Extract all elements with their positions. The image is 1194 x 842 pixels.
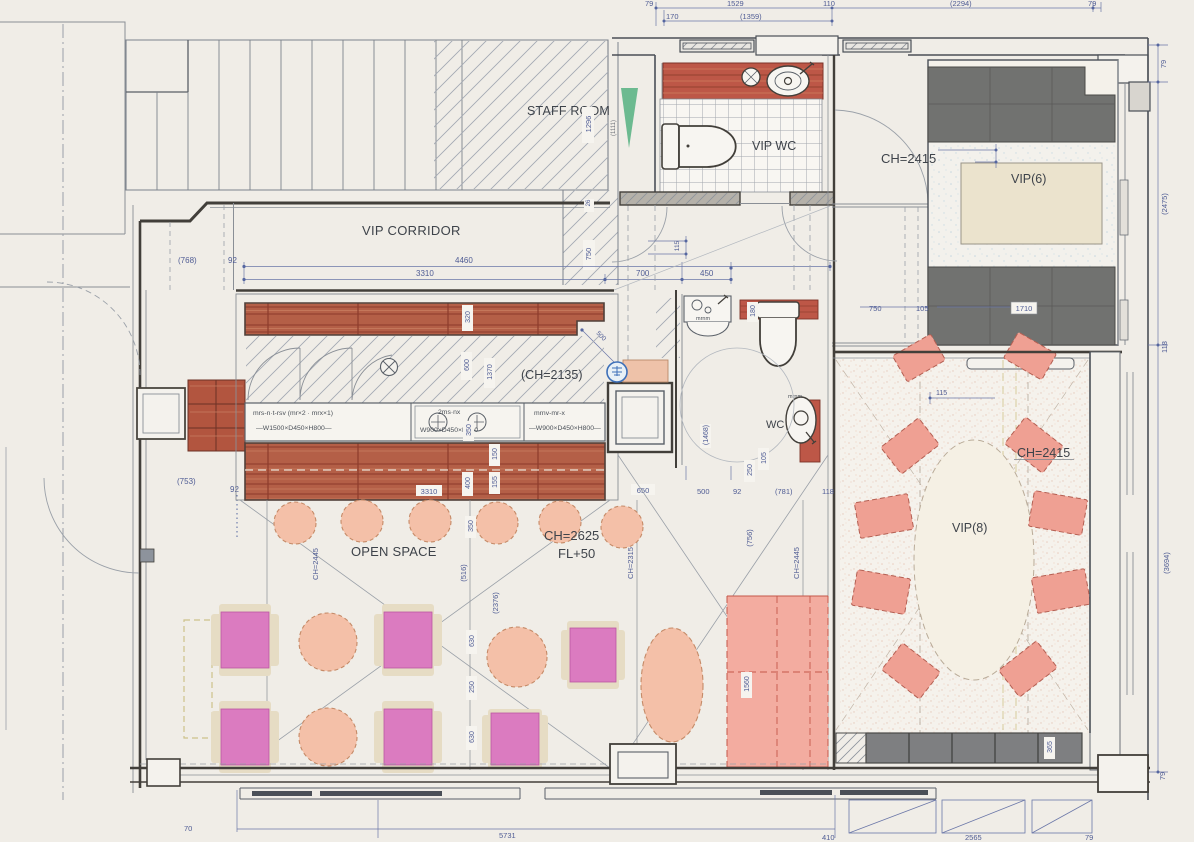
svg-text:155: 155	[492, 476, 499, 488]
svg-text:(1468): (1468)	[703, 425, 710, 445]
svg-text:115: 115	[674, 240, 681, 251]
svg-text:79: 79	[1085, 833, 1093, 842]
svg-text:750: 750	[584, 248, 593, 261]
svg-text:750: 750	[869, 304, 882, 313]
svg-text:FL+50: FL+50	[558, 546, 595, 561]
svg-text:(2475): (2475)	[1160, 193, 1169, 215]
svg-text:CH=2445: CH=2445	[311, 548, 320, 580]
svg-text:1560: 1560	[744, 676, 751, 692]
svg-text:630: 630	[469, 635, 476, 647]
svg-text:mrnm: mrnm	[788, 394, 802, 400]
svg-text:70: 70	[184, 824, 192, 833]
svg-text:mrnm: mrnm	[696, 316, 710, 322]
svg-text:320: 320	[465, 311, 472, 323]
svg-text:(781): (781)	[775, 487, 793, 496]
svg-text:500: 500	[697, 487, 710, 496]
svg-text:350: 350	[468, 520, 475, 532]
svg-text:115: 115	[936, 390, 947, 397]
svg-text:92: 92	[230, 485, 239, 494]
svg-text:(3694): (3694)	[1162, 552, 1171, 574]
svg-text:1370: 1370	[487, 364, 494, 380]
svg-text:VIP(8): VIP(8)	[952, 521, 987, 535]
svg-text:110: 110	[823, 0, 835, 8]
svg-text:650: 650	[637, 486, 650, 495]
svg-text:2ms·nx: 2ms·nx	[438, 409, 461, 416]
svg-text:118: 118	[1160, 341, 1169, 353]
svg-text:VIP CORRIDOR: VIP CORRIDOR	[362, 223, 461, 238]
svg-text:(2376): (2376)	[491, 592, 500, 614]
svg-text:630: 630	[469, 731, 476, 743]
svg-text:(1359): (1359)	[740, 12, 762, 21]
svg-text:400: 400	[465, 477, 472, 489]
svg-text:1296: 1296	[584, 116, 593, 133]
svg-text:(768): (768)	[178, 256, 197, 265]
svg-text:1529: 1529	[727, 0, 744, 8]
svg-text:WC: WC	[766, 419, 784, 431]
svg-text:105: 105	[916, 304, 929, 313]
svg-text:OPEN SPACE: OPEN SPACE	[351, 544, 437, 559]
svg-text:105: 105	[761, 452, 768, 464]
svg-text:79: 79	[1158, 772, 1167, 780]
svg-text:—W900×D450×H800—: —W900×D450×H800—	[529, 425, 601, 432]
svg-text:26: 26	[586, 199, 592, 206]
svg-text:170: 170	[666, 12, 679, 21]
svg-text:92: 92	[228, 256, 237, 265]
svg-text:(CH=2135): (CH=2135)	[521, 368, 583, 382]
svg-text:STAFF ROOM: STAFF ROOM	[527, 104, 610, 118]
svg-text:mrs-n·t-rsv (mr×2 · mrx×1): mrs-n·t-rsv (mr×2 · mrx×1)	[253, 410, 333, 417]
svg-text:2565: 2565	[965, 833, 982, 842]
svg-text:600: 600	[464, 359, 471, 371]
svg-text:450: 450	[700, 269, 714, 278]
svg-text:410: 410	[822, 833, 835, 842]
svg-text:(753): (753)	[177, 477, 196, 486]
svg-text:(756): (756)	[745, 529, 754, 547]
svg-text:3310: 3310	[416, 269, 434, 278]
svg-text:1710: 1710	[1016, 304, 1033, 313]
svg-text:CH=2415: CH=2415	[881, 151, 936, 166]
svg-text:VIP(6): VIP(6)	[1011, 172, 1046, 186]
svg-text:CH=2415: CH=2415	[1017, 446, 1070, 460]
svg-text:118: 118	[822, 487, 834, 496]
svg-text:3310: 3310	[421, 487, 438, 496]
svg-text:CH=2315: CH=2315	[626, 547, 635, 579]
svg-text:(1111): (1111)	[611, 120, 617, 136]
svg-text:92: 92	[733, 487, 741, 496]
svg-text:365: 365	[1047, 741, 1054, 753]
svg-text:5731: 5731	[499, 831, 516, 840]
svg-text:CH=2625: CH=2625	[544, 528, 599, 543]
svg-text:—W1500×D450×H800—: —W1500×D450×H800—	[256, 425, 332, 432]
svg-text:4460: 4460	[455, 256, 473, 265]
svg-text:VIP WC: VIP WC	[752, 139, 796, 153]
svg-text:(516): (516)	[459, 564, 468, 582]
svg-text:79: 79	[645, 0, 653, 8]
svg-text:CH=2445: CH=2445	[792, 547, 801, 579]
svg-text:79: 79	[1159, 60, 1168, 68]
svg-text:79: 79	[1088, 0, 1096, 8]
svg-text:180: 180	[750, 305, 757, 317]
svg-text:mrnv-mr-x: mrnv-mr-x	[534, 410, 566, 417]
svg-text:(2294): (2294)	[950, 0, 972, 8]
svg-text:250: 250	[469, 681, 476, 693]
svg-text:150: 150	[492, 448, 499, 460]
svg-text:250: 250	[747, 464, 754, 476]
svg-text:350: 350	[466, 424, 473, 436]
